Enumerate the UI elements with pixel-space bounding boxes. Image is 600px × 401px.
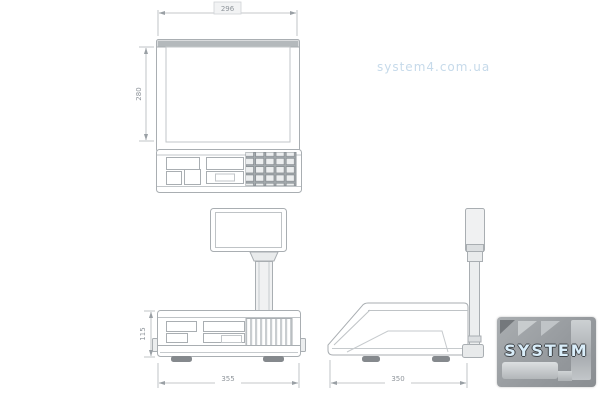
display-window <box>185 170 201 185</box>
side-pole <box>470 262 480 347</box>
side-view-dimensions <box>330 360 467 388</box>
logo-bottom-notch <box>558 371 572 381</box>
front-keypad-stripes <box>246 319 292 346</box>
drawing-canvas: 296 280 <box>0 0 600 401</box>
front-view <box>153 209 306 363</box>
foot <box>263 356 284 362</box>
right-side-tab <box>301 339 306 352</box>
dim-top-width: 296 <box>221 5 235 13</box>
customer-display <box>211 209 287 252</box>
dim-front-width: 355 <box>221 375 234 383</box>
side-display-band <box>467 245 484 252</box>
side-pole-base <box>463 345 484 358</box>
logo-triangle-light-icon <box>518 321 537 336</box>
top-view-platter-edge-bar <box>158 41 299 47</box>
logo-wordmark: SYSTEM <box>497 341 596 360</box>
dim-side-depth: 350 <box>391 375 404 383</box>
foot <box>432 356 450 362</box>
side-display-bracket <box>468 252 483 262</box>
foot <box>362 356 380 362</box>
side-pole-joint <box>468 336 481 342</box>
logo-bottom-bar <box>502 362 558 379</box>
logo-triangle-light-icon <box>541 321 560 336</box>
top-view <box>157 40 302 193</box>
watermark-text: system4.com.ua <box>377 60 490 74</box>
side-view <box>328 209 485 363</box>
top-view-platter-outline <box>157 40 300 152</box>
display-bracket <box>250 252 278 261</box>
left-side-tab <box>153 339 158 352</box>
dim-top-depth: 280 <box>135 87 143 100</box>
keypad-grid <box>246 153 296 186</box>
system-4-logo: SYSTEM <box>497 317 596 387</box>
dim-front-height: 115 <box>139 327 147 340</box>
foot <box>171 356 192 362</box>
pole <box>256 262 273 311</box>
logo-triangle-dark-icon <box>500 320 515 334</box>
